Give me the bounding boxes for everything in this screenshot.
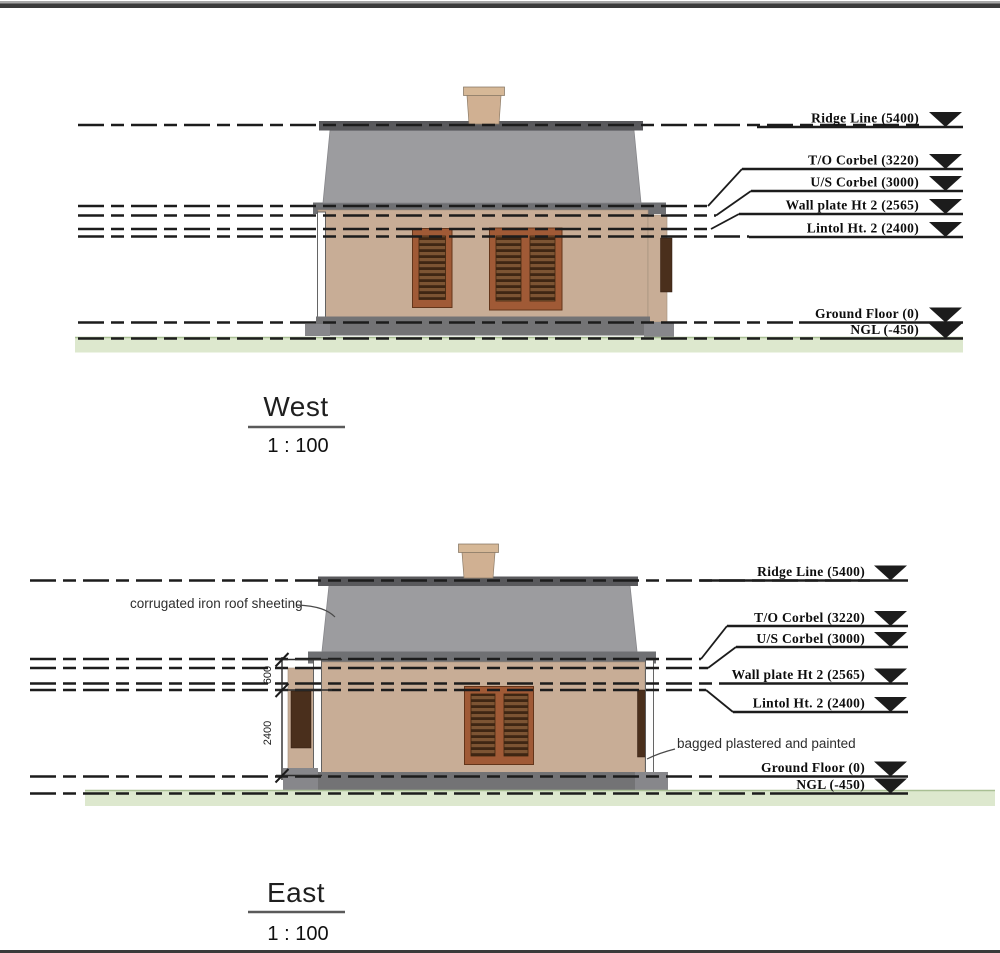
east-level-ground-floor: Ground Floor (0) xyxy=(745,760,908,777)
east-dim-2400: 2400 xyxy=(262,721,274,745)
west-level-label-wall-plate: Wall plate Ht 2 (2565) xyxy=(786,198,919,213)
east-chimney-cap xyxy=(459,544,499,553)
east-downpipe-right xyxy=(646,660,654,778)
west-window-double-louvers-left xyxy=(496,236,521,301)
east-level-us-corbel: U/S Corbel (3000) xyxy=(708,631,908,668)
west-level-leader-us-corbel xyxy=(716,191,751,216)
west-level-label-to-corbel: T/O Corbel (3220) xyxy=(808,153,919,168)
east-side-wing-shutter xyxy=(291,691,311,748)
west-level-marker-lintol xyxy=(929,222,962,237)
east-note-wall-finish: bagged plastered and painted xyxy=(677,736,856,751)
west-level-label-ground-floor: Ground Floor (0) xyxy=(815,306,919,321)
west-level-label-us-corbel: U/S Corbel (3000) xyxy=(810,175,919,190)
east-title: East xyxy=(267,877,325,908)
east-roof xyxy=(322,586,637,652)
west-side-wing-shutter xyxy=(661,238,673,292)
west-downpipe-shoe xyxy=(305,324,330,336)
west-level-ngl: NGL (-450) xyxy=(827,322,963,339)
west-scale: 1 : 100 xyxy=(267,435,328,457)
west-level-lintol: Lintol Ht. 2 (2400) xyxy=(749,221,963,238)
east-level-leader-us-corbel xyxy=(708,647,736,668)
east-note-roof-sheeting: corrugated iron roof sheeting xyxy=(130,596,303,611)
elevation-drawing-canvas: Ridge Line (5400) T/O Corbel (3220) U/S … xyxy=(0,0,1000,953)
elevation-sheet: Ridge Line (5400) T/O Corbel (3220) U/S … xyxy=(0,0,1000,953)
west-roof xyxy=(323,131,641,204)
west-level-ground-floor: Ground Floor (0) xyxy=(799,306,963,323)
east-chimney xyxy=(462,553,495,579)
east-level-leader-to-corbel xyxy=(701,626,727,659)
west-level-label-lintol: Lintol Ht. 2 (2400) xyxy=(807,221,919,236)
east-level-label-lintol: Lintol Ht. 2 (2400) xyxy=(753,696,865,711)
east-level-marker-us-corbel xyxy=(874,632,907,647)
east-level-lintol: Lintol Ht. 2 (2400) xyxy=(706,690,908,712)
east-level-marker-ridge xyxy=(874,566,907,581)
east-level-labels: Ridge Line (5400) T/O Corbel (3220) U/S … xyxy=(700,564,908,794)
west-chimney xyxy=(467,96,501,125)
east-downpipe-left xyxy=(314,660,322,777)
east-plinth xyxy=(316,772,647,792)
west-title-block: West 1 : 100 xyxy=(248,391,345,457)
east-level-marker-to-corbel xyxy=(874,611,907,626)
east-level-leader-lintol xyxy=(706,690,733,712)
west-level-label-ridge: Ridge Line (5400) xyxy=(811,111,919,126)
west-level-label-ngl: NGL (-450) xyxy=(850,322,919,337)
east-level-label-to-corbel: T/O Corbel (3220) xyxy=(754,610,865,625)
east-level-label-us-corbel: U/S Corbel (3000) xyxy=(756,631,865,646)
west-level-marker-ngl xyxy=(929,324,962,339)
east-scale: 1 : 100 xyxy=(267,923,328,945)
east-level-marker-wall-plate xyxy=(874,669,907,684)
east-level-marker-lintol xyxy=(874,697,907,712)
west-elevation: Ridge Line (5400) T/O Corbel (3220) U/S … xyxy=(75,87,963,457)
west-level-marker-ground-floor xyxy=(929,308,962,323)
east-level-wall-plate: Wall plate Ht 2 (2565) xyxy=(723,667,908,684)
sheet-top-rule-shadow xyxy=(0,4,1000,9)
west-chimney-cap xyxy=(464,87,505,96)
east-right-shutter-strip xyxy=(638,690,646,757)
east-wing-plinth-shoe xyxy=(283,768,318,790)
west-wall xyxy=(318,210,648,322)
sheet-top-rule xyxy=(0,1,1000,4)
east-title-block: East 1 : 100 xyxy=(248,877,345,945)
east-level-marker-ground-floor xyxy=(874,762,907,777)
east-window-double-louvers-left xyxy=(471,694,495,756)
east-level-label-ridge: Ridge Line (5400) xyxy=(757,564,865,579)
west-level-labels: Ridge Line (5400) T/O Corbel (3220) U/S … xyxy=(708,111,963,339)
east-level-ridge-line: Ridge Line (5400) xyxy=(700,564,908,581)
west-wing-plinth-shoe xyxy=(644,322,674,337)
west-window-double-louvers-right xyxy=(530,236,555,301)
east-level-label-wall-plate: Wall plate Ht 2 (2565) xyxy=(732,667,865,682)
east-dim-600: 600 xyxy=(262,666,274,684)
east-level-label-ground-floor: Ground Floor (0) xyxy=(761,760,865,775)
east-window-double-louvers-right xyxy=(504,694,528,756)
east-elevation: Ridge Line (5400) T/O Corbel (3220) U/S … xyxy=(30,544,995,945)
west-level-marker-ridge xyxy=(929,112,962,127)
west-plinth xyxy=(316,317,650,336)
west-level-marker-us-corbel xyxy=(929,176,962,191)
west-level-marker-to-corbel xyxy=(929,154,962,169)
east-level-label-ngl: NGL (-450) xyxy=(796,777,865,792)
west-level-marker-wall-plate xyxy=(929,199,962,214)
west-title: West xyxy=(263,391,328,422)
west-window-single-louvers xyxy=(419,236,446,300)
